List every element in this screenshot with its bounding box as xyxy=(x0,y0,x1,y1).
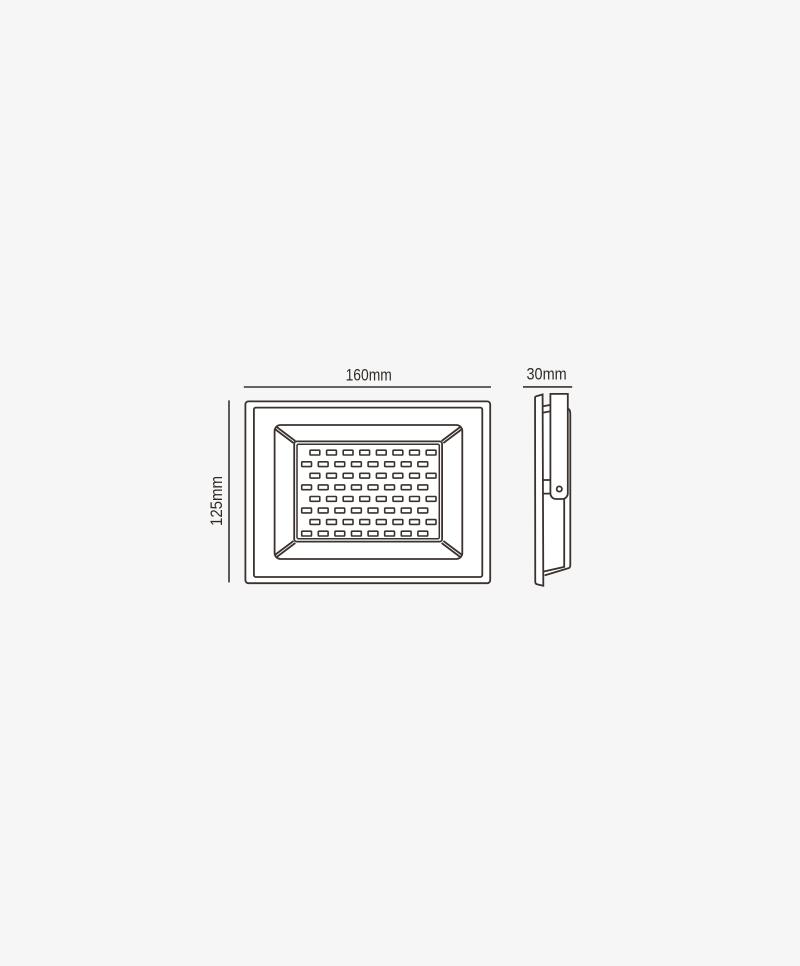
svg-text:125mm: 125mm xyxy=(207,476,226,526)
svg-text:30mm: 30mm xyxy=(527,365,567,384)
svg-text:160mm: 160mm xyxy=(346,366,392,385)
